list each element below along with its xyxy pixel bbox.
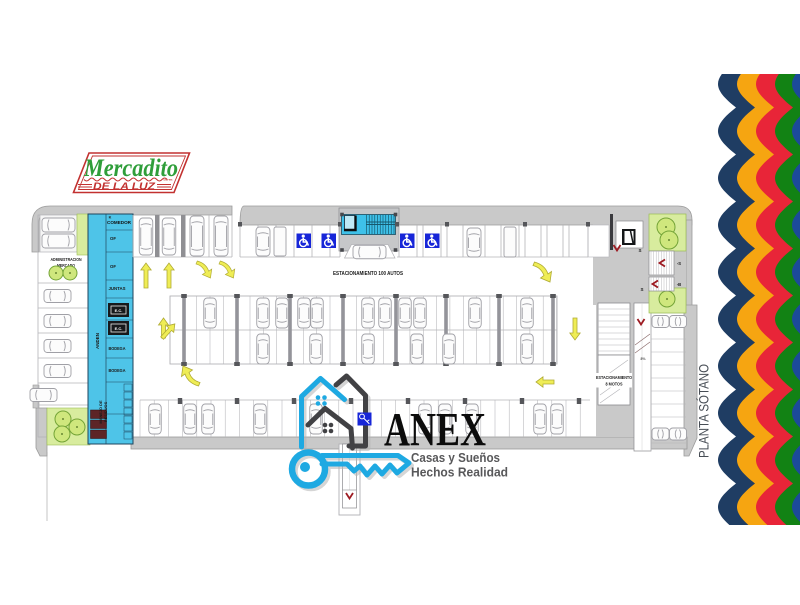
svg-text:csa-mx: csa-mx <box>164 179 173 182</box>
svg-text:PLANTA SÓTANO: PLANTA SÓTANO <box>696 364 712 458</box>
svg-text:Hechos Realidad: Hechos Realidad <box>411 466 508 480</box>
svg-text:BODEGA: BODEGA <box>109 368 126 373</box>
svg-text:JUNTAS: JUNTAS <box>109 286 126 291</box>
svg-text:RESIDUOS: RESIDUOS <box>103 401 108 422</box>
svg-text:COMEDOR: COMEDOR <box>107 220 132 225</box>
svg-text:K: K <box>109 216 112 220</box>
svg-text:Casas y Sueños: Casas y Sueños <box>411 451 500 465</box>
svg-text:8 MOTOS: 8 MOTOS <box>606 382 623 387</box>
svg-text:DE LA LUZ: DE LA LUZ <box>93 181 156 193</box>
svg-text:ESTACIONAMIENTO 100 AUTOS: ESTACIONAMIENTO 100 AUTOS <box>333 271 403 277</box>
svg-text:-B: -B <box>677 282 681 287</box>
svg-text:S: S <box>638 248 641 253</box>
svg-text:S: S <box>640 287 643 292</box>
svg-text:OF: OF <box>110 264 116 269</box>
svg-text:ANEX: ANEX <box>384 404 486 457</box>
svg-text:E.C.: E.C. <box>115 308 123 313</box>
svg-text:ANDEN: ANDEN <box>95 333 100 349</box>
svg-text:-S: -S <box>677 261 681 266</box>
svg-text:BODEGA: BODEGA <box>109 346 126 351</box>
svg-text:E.C.: E.C. <box>115 326 123 331</box>
svg-text:ADMINISTRACION: ADMINISTRACION <box>51 257 82 262</box>
svg-text:ESTACIONAMIENTO: ESTACIONAMIENTO <box>596 375 633 380</box>
svg-text:8%: 8% <box>640 357 646 361</box>
svg-text:OF: OF <box>110 236 116 241</box>
